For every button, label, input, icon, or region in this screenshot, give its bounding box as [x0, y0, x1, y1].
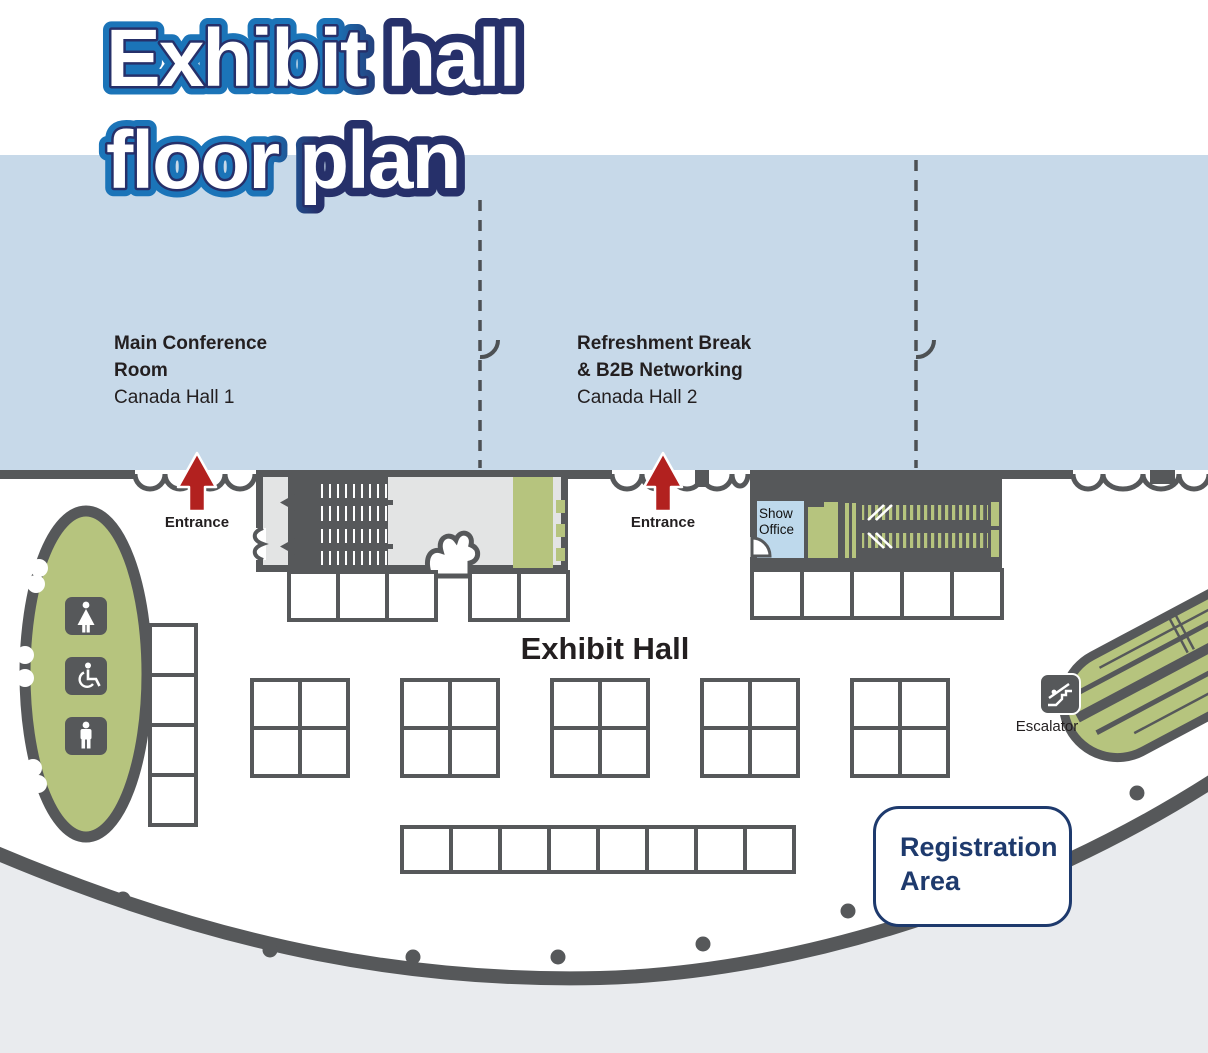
booth-cell — [698, 829, 743, 870]
booth-cell — [602, 730, 646, 774]
booth-cell — [649, 829, 694, 870]
escalator-sign — [1040, 674, 1080, 714]
booth-cell — [404, 682, 448, 726]
entrance-label-right: Entrance — [603, 514, 723, 531]
booth-cell — [954, 572, 1000, 616]
booth-cell — [472, 574, 517, 618]
booth-cell — [752, 730, 796, 774]
entrance-label-left: Entrance — [137, 514, 257, 531]
show-office-label: Show Office — [759, 506, 805, 538]
booth-cell — [551, 829, 596, 870]
booth-cell — [404, 829, 449, 870]
booth-cell — [600, 829, 645, 870]
exhibit-hall-label: Exhibit Hall — [455, 631, 755, 667]
refreshment-name-line1: Refreshment Break — [577, 330, 751, 357]
registration-label-line1: Registration — [900, 831, 1069, 865]
booth-cell — [554, 730, 598, 774]
booth-cell — [254, 682, 298, 726]
booth-cell — [340, 574, 385, 618]
accessible-restroom-sign — [65, 657, 107, 695]
booth-block-5 — [850, 678, 950, 778]
escalator-bank — [1044, 547, 1208, 776]
refreshment-label: Refreshment Break & B2B Networking Canad… — [577, 330, 751, 411]
door-squiggle — [255, 528, 263, 560]
booth-cell — [902, 682, 946, 726]
title-line1: Exhibit hall — [106, 13, 519, 104]
booth-cell — [752, 682, 796, 726]
page-title: Exhibit hall Exhibit hall floor plan flo… — [96, 4, 656, 219]
booth-cell — [602, 682, 646, 726]
booth-cell — [804, 572, 850, 616]
booth-cell — [302, 730, 346, 774]
booth-cell — [502, 829, 547, 870]
booth-cell — [291, 574, 336, 618]
booth-block-2 — [400, 678, 500, 778]
booth-block-4 — [700, 678, 800, 778]
booth-cell — [452, 682, 496, 726]
booth-cell — [854, 682, 898, 726]
escalator-label: Escalator — [987, 718, 1107, 735]
booth-cell — [904, 572, 950, 616]
booth-cell — [404, 730, 448, 774]
booth-cell — [152, 677, 194, 723]
booth-row-under-stairs — [287, 570, 438, 622]
refreshment-hall: Canada Hall 2 — [577, 384, 751, 411]
green-zone-strip — [513, 477, 553, 568]
entrance-arrow-left — [178, 453, 216, 511]
booth-cell — [554, 682, 598, 726]
registration-area-box: Registration Area — [873, 806, 1072, 927]
booth-column-left — [148, 623, 198, 827]
booth-cell — [521, 574, 566, 618]
booth-cell — [704, 682, 748, 726]
booth-cell — [854, 730, 898, 774]
entrance-arrow-right — [644, 453, 682, 511]
registration-label-line2: Area — [900, 865, 1069, 899]
booth-cell — [152, 777, 194, 823]
restroom-oval — [16, 511, 147, 837]
title-line2: floor plan — [106, 115, 460, 206]
main-conference-hall: Canada Hall 1 — [114, 384, 267, 411]
booth-row-under-office — [750, 568, 1004, 620]
booth-cell — [747, 829, 792, 870]
booth-cell — [152, 627, 194, 673]
main-conference-name-line2: Room — [114, 357, 267, 384]
main-conference-name-line1: Main Conference — [114, 330, 267, 357]
booth-block-1 — [250, 678, 350, 778]
booth-cell — [452, 730, 496, 774]
left-stair-building — [255, 474, 565, 577]
refreshment-name-line2: & B2B Networking — [577, 357, 751, 384]
booth-pair-under-stairs — [468, 570, 570, 622]
booth-row-bottom — [400, 825, 796, 874]
booth-cell — [152, 727, 194, 773]
main-conference-label: Main Conference Room Canada Hall 1 — [114, 330, 267, 411]
booth-cell — [254, 730, 298, 774]
booth-cell — [754, 572, 800, 616]
booth-cell — [902, 730, 946, 774]
floor-plan-page: Exhibit hall Exhibit hall floor plan flo… — [0, 0, 1208, 1053]
booth-cell — [389, 574, 434, 618]
booth-cell — [302, 682, 346, 726]
booth-cell — [854, 572, 900, 616]
booth-cell — [453, 829, 498, 870]
booth-cell — [704, 730, 748, 774]
booth-block-3 — [550, 678, 650, 778]
